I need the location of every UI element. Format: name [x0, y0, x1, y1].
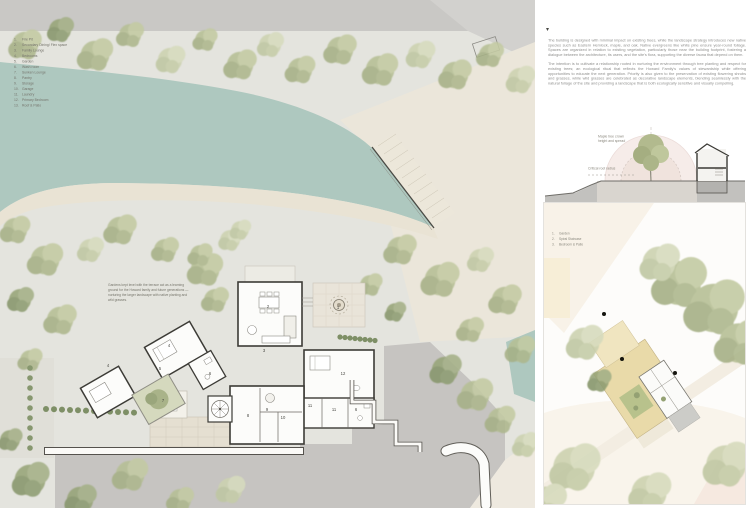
- service-block-south: [230, 386, 304, 444]
- room-label: 11: [332, 407, 337, 412]
- presentation-board: 1 2 3 4 4 5 6 6 7 8 9 10 11 11 12 1.Fire…: [0, 0, 750, 530]
- legend-row: 13.Roof & Patio: [14, 103, 104, 109]
- detail-panel: 1.Garden 2.Spiral Staircase 3.Bedroom & …: [543, 202, 746, 505]
- bedroom-wing-east: [304, 350, 374, 402]
- section-marker-icon: ▾: [546, 26, 549, 33]
- room-label: 10: [281, 415, 286, 420]
- axon-garden-strip: [544, 258, 570, 318]
- room-label: 11: [308, 403, 313, 408]
- kitchen-island: [284, 316, 296, 338]
- round-chair: [248, 326, 257, 335]
- bed: [310, 356, 330, 370]
- legend-row: 3.Bedroom & Patio: [552, 242, 632, 248]
- plan-legend: 1.Fire Pit 2.Secondary Dining/ Flex spac…: [14, 37, 104, 112]
- north-terrace: [245, 266, 295, 282]
- callout-dot: [620, 357, 624, 361]
- house-section: [695, 144, 729, 193]
- living-block: [238, 282, 313, 346]
- callout-dot: [673, 371, 677, 375]
- detail-legend: 1.Garden 2.Spiral Staircase 3.Bedroom & …: [552, 231, 632, 251]
- sofa: [262, 336, 290, 343]
- spiral-stair: [208, 396, 232, 422]
- body-text: The building is designed with minimal im…: [548, 38, 746, 108]
- root-label: Critical root radius: [588, 167, 648, 175]
- paragraph-2: The intention is to cultivate a relation…: [548, 62, 746, 86]
- ground-under-tree: [597, 181, 697, 203]
- room-label: 12: [341, 371, 346, 376]
- callout-dot: [602, 312, 606, 316]
- annotation-note: Gardens kept level with the terrace act …: [108, 283, 193, 307]
- paragraph-1: The building is designed with minimal im…: [548, 38, 746, 57]
- crown-label: Maple tree crown height and spread: [598, 135, 658, 147]
